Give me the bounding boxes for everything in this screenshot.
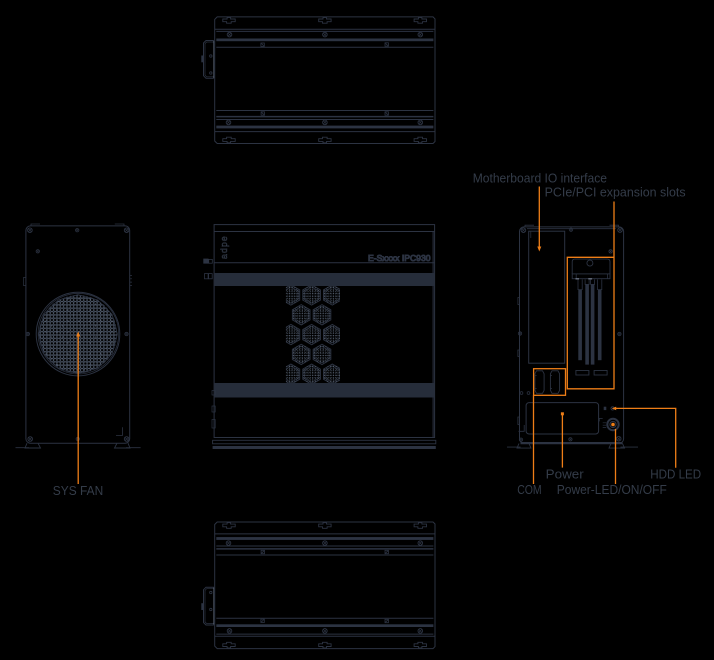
svg-text:E-Sxxxx IPC930: E-Sxxxx IPC930: [368, 254, 431, 263]
svg-text:PCIe/PCI expansion slots: PCIe/PCI expansion slots: [545, 186, 686, 200]
svg-text:adpe: adpe: [219, 236, 229, 259]
svg-text:Power: Power: [546, 467, 584, 481]
svg-text:Power-LED/ON/OFF: Power-LED/ON/OFF: [557, 483, 667, 497]
svg-text:HDD LED: HDD LED: [650, 467, 701, 481]
svg-text:COM: COM: [517, 483, 542, 497]
svg-text:SYS FAN: SYS FAN: [53, 484, 103, 498]
svg-text:Motherboard IO interface: Motherboard IO interface: [473, 172, 607, 186]
